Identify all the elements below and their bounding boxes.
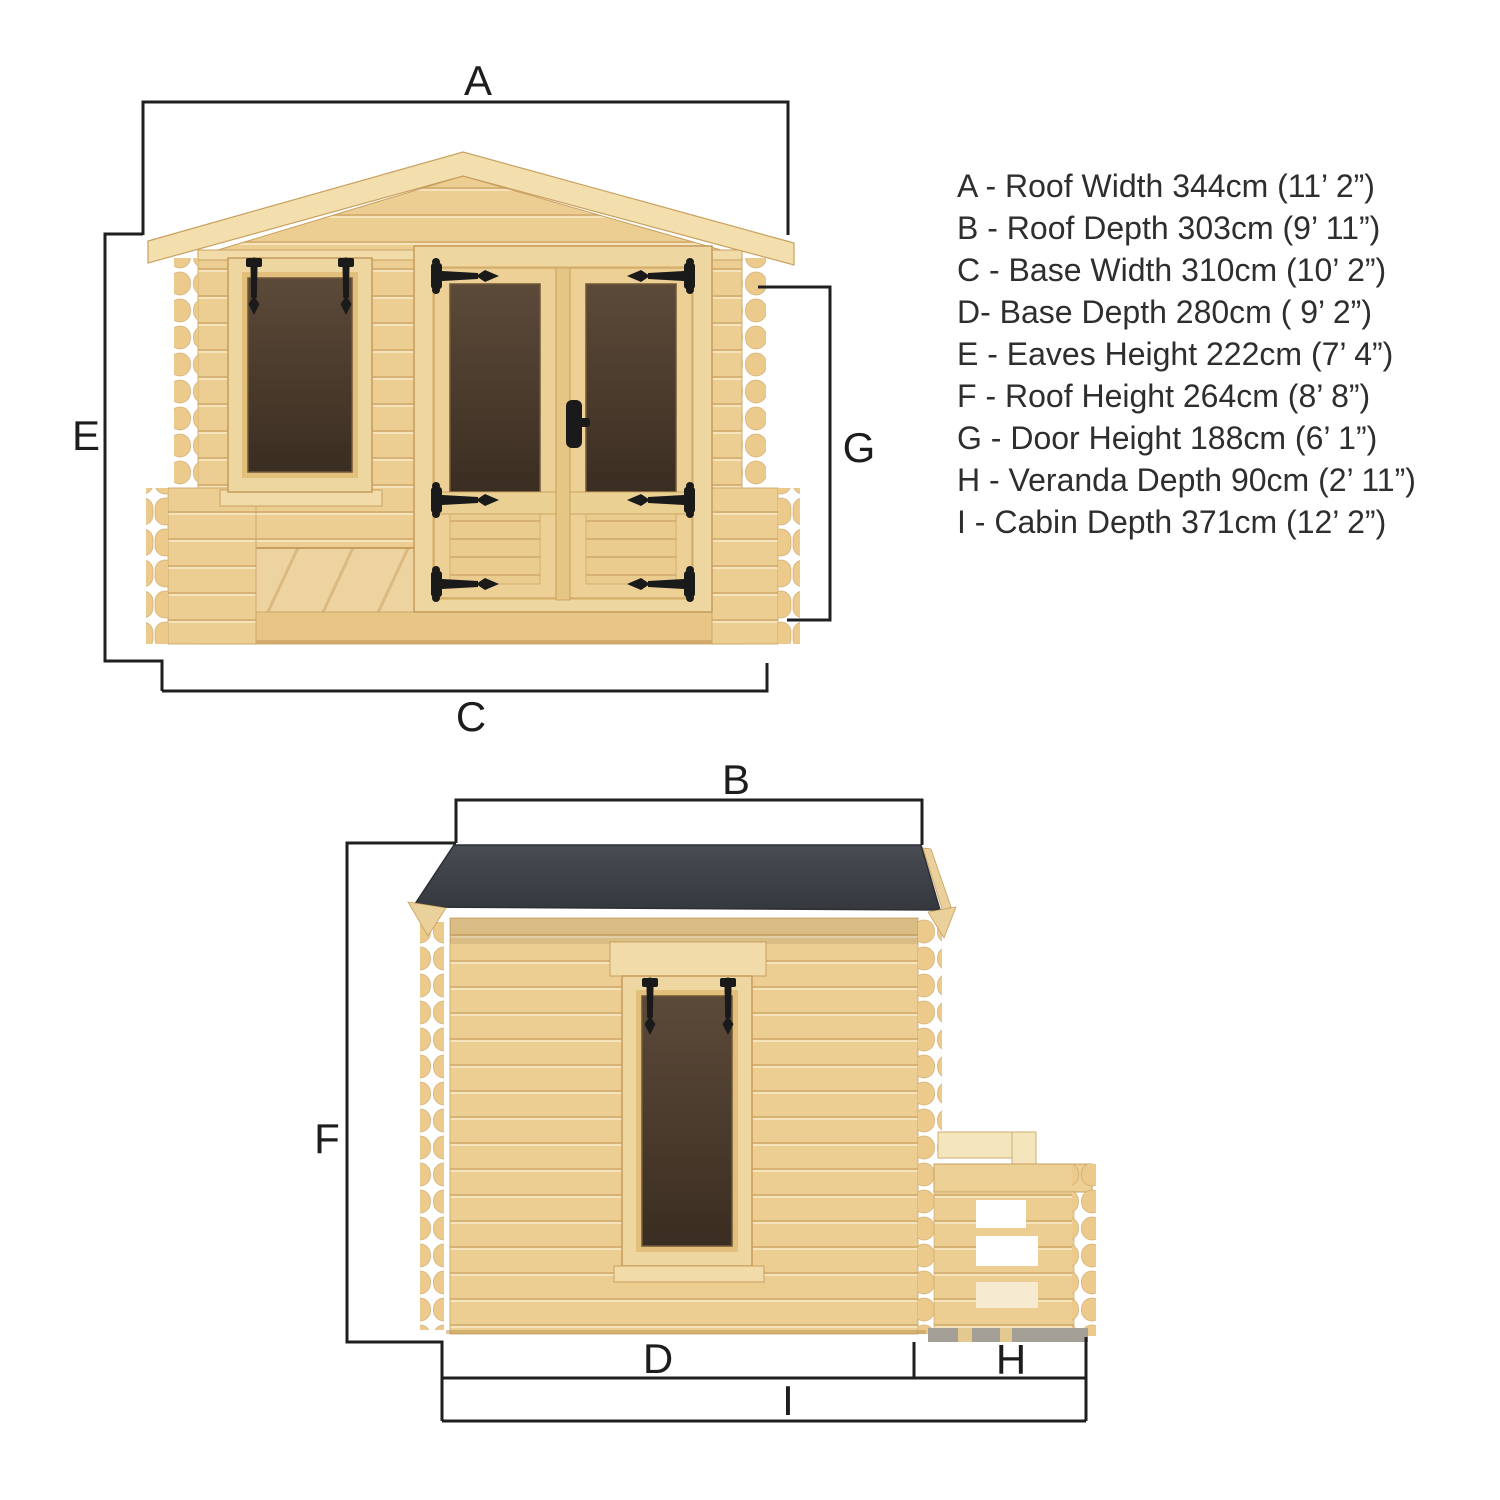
legend-item: E - Eaves Height 222cm (7’ 4”) [957,336,1393,372]
diagram-canvas: A E G C [0,0,1500,1500]
side-elevation-view: B F D H I [314,756,1096,1424]
side-roof-felt [413,845,940,910]
front-elevation-view: A E G C [72,57,875,740]
veranda-corner-post-logends [1072,1164,1096,1336]
veranda-foot [958,1328,972,1342]
side-corner-logs-left [420,922,444,1330]
veranda-rail-gap [976,1200,1026,1228]
dimension-line-b [456,800,922,845]
dim-label-b: B [722,756,750,803]
side-window-glass [642,996,732,1246]
dim-label-g: G [843,424,876,471]
door-panel-right [586,514,676,584]
veranda-rail-gap [976,1282,1038,1308]
front-corner-logs-left [174,258,198,488]
dimension-line-c [162,663,767,691]
base-shadow [198,640,742,644]
page: { "colors": { "background": "#ffffff", "… [0,0,1500,1500]
front-window [220,258,382,507]
side-window-sill [614,1266,764,1282]
door-panel-left [450,514,540,584]
legend-item: I - Cabin Depth 371cm (12’ 2”) [957,504,1386,540]
base-fascia [198,612,742,644]
legend-item: C - Base Width 310cm (10’ 2”) [957,252,1386,288]
dim-label-h: H [996,1336,1026,1383]
veranda-top-rail [934,1164,1092,1192]
side-wall-roof-shadow [450,918,918,944]
legend-item: A - Roof Width 344cm (11’ 2”) [957,168,1375,204]
dim-label-c: C [456,693,486,740]
dim-label-d: D [643,1335,673,1382]
veranda-pillar-left-logends [146,488,168,644]
side-window [610,942,766,1282]
front-corner-logs-right [742,258,766,488]
legend-item: G - Door Height 188cm (6’ 1”) [957,420,1377,456]
dim-label-a: A [464,57,492,104]
dim-label-i: I [782,1377,794,1424]
legend-item: D- Base Depth 280cm ( 9’ 2”) [957,294,1372,330]
front-double-door [414,246,712,612]
dimension-legend: A - Roof Width 344cm (11’ 2”) B - Roof D… [957,168,1416,540]
door-glass-left [450,284,540,492]
legend-item: F - Roof Height 264cm (8’ 8”) [957,378,1370,414]
side-veranda [928,1132,1096,1342]
side-wall-base-edge [446,1330,926,1334]
front-window-glass [248,278,352,472]
legend-item: B - Roof Depth 303cm (9’ 11”) [957,210,1380,246]
veranda-rail-gap [976,1236,1038,1266]
legend-item: H - Veranda Depth 90cm (2’ 11”) [957,462,1416,498]
veranda-pillar-right [712,488,778,644]
veranda-pillar-left [168,488,256,644]
dim-label-f: F [314,1115,340,1162]
dim-label-e: E [72,412,100,459]
door-glass-right [586,284,676,492]
side-window-header [610,942,766,976]
